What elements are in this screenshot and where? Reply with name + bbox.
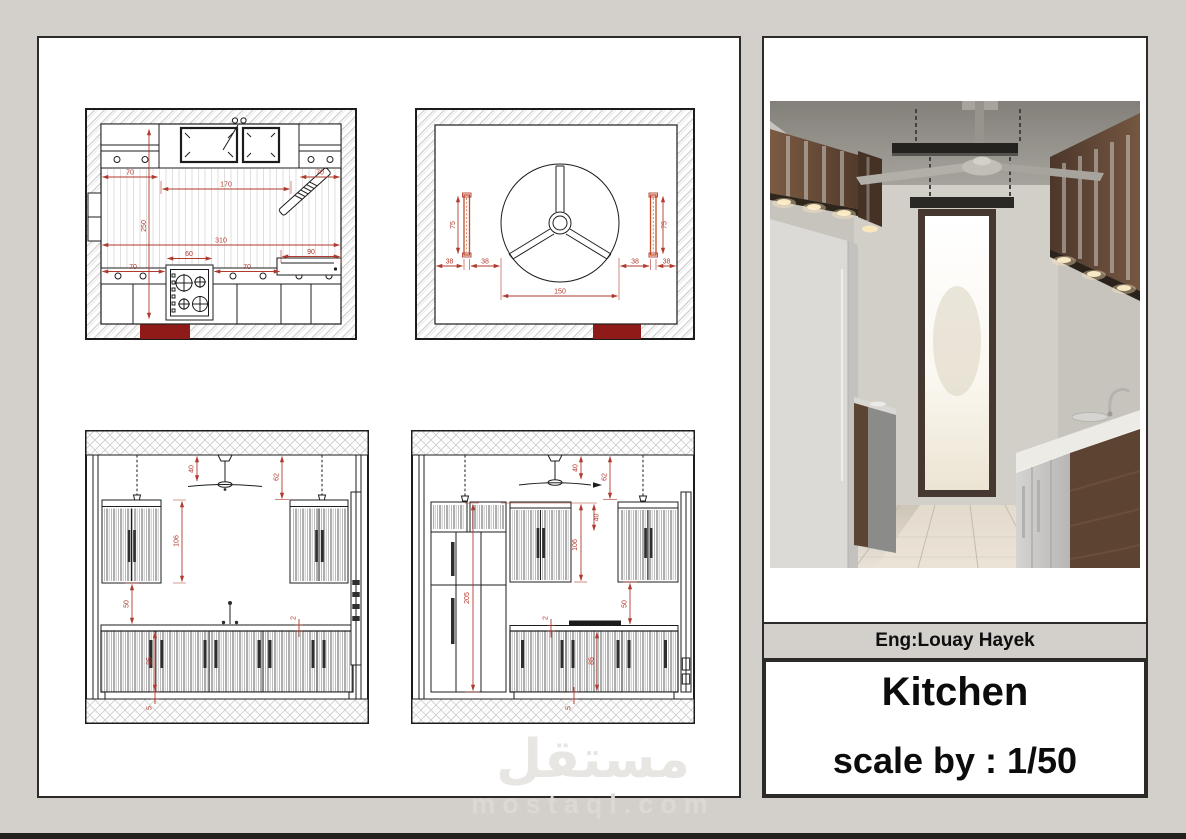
dim-label: 70 xyxy=(126,170,134,177)
wall-cabinet-left xyxy=(102,500,161,583)
dim-label: 38 xyxy=(446,259,454,266)
elevation-sink-wall-drawing: 40 62 106 50 85 2 5 xyxy=(85,430,369,724)
dim-label: 205 xyxy=(464,592,471,604)
sink-basin xyxy=(1072,413,1108,422)
dim-label: 170 xyxy=(220,182,232,189)
side-unit-right xyxy=(351,492,361,665)
dim-label: 60 xyxy=(185,251,193,258)
upper-cabinet-right xyxy=(299,124,341,168)
dim-label: 106 xyxy=(572,539,579,551)
dim-label: 5 xyxy=(147,706,154,710)
dim-label: 75 xyxy=(450,221,457,229)
scale-text: scale by : 1/50 xyxy=(833,740,1077,782)
dim-label: 70 xyxy=(316,170,324,177)
wall-cabinet-right xyxy=(290,500,348,583)
dim-label: 150 xyxy=(554,289,566,296)
floor-mat xyxy=(593,325,641,340)
dim-label: 40 xyxy=(189,465,196,473)
cooktop xyxy=(569,621,621,626)
kitchen-3d-render xyxy=(770,101,1140,568)
floor-plan-drawing: 70 70 170 250 310 70 60 70 90 xyxy=(85,108,357,340)
dim-label: 38 xyxy=(663,259,671,266)
upper-cabinet-left xyxy=(101,124,159,168)
light-fixture-right xyxy=(649,193,658,257)
fridge xyxy=(431,532,506,692)
dim-label: 38 xyxy=(481,259,489,266)
dim-label: 62 xyxy=(274,473,281,481)
engineer-band: Eng:Louay Hayek xyxy=(764,622,1146,660)
stove xyxy=(166,265,213,320)
dim-label: 50 xyxy=(124,600,131,608)
title-block: Kitchen scale by : 1/50 xyxy=(764,660,1146,796)
dim-label: 40 xyxy=(573,464,580,472)
dim-label: 2 xyxy=(543,616,550,620)
elevation-fridge-wall-drawing: 40 62 40 106 205 50 2 85 5 xyxy=(411,430,695,724)
dim-label: 85 xyxy=(147,657,154,665)
dim-label: 38 xyxy=(631,259,639,266)
project-title: Kitchen xyxy=(882,670,1029,715)
dim-label: 90 xyxy=(307,249,315,256)
window xyxy=(918,209,996,497)
light-bar-lower xyxy=(910,197,1014,208)
dim-label: 310 xyxy=(215,238,227,245)
dim-label: 40 xyxy=(594,514,601,522)
oven-unit xyxy=(277,258,341,275)
dim-label: 50 xyxy=(622,600,629,608)
dim-label: 2 xyxy=(291,616,298,620)
dim-label: 70 xyxy=(129,264,137,271)
dim-label: 85 xyxy=(589,657,596,665)
drawing-sheet-left: 70 70 170 250 310 70 60 70 90 xyxy=(37,36,741,798)
floor-mat xyxy=(140,325,190,340)
dim-label: 250 xyxy=(141,220,148,232)
ceiling-plan-drawing: 75 75 38 38 38 38 150 xyxy=(415,108,695,340)
dim-label: 62 xyxy=(602,473,609,481)
base-cabinets xyxy=(101,625,353,699)
dim-label: 5 xyxy=(566,706,573,710)
dim-label: 70 xyxy=(243,264,251,271)
title-sheet-right: Eng:Louay Hayek Kitchen scale by : 1/50 xyxy=(762,36,1148,798)
dim-label: 75 xyxy=(662,221,669,229)
bottom-edge-strip xyxy=(0,833,1186,839)
wall-cabinet-right xyxy=(618,502,678,582)
fridge xyxy=(770,219,858,568)
mid-base-cabinet xyxy=(854,397,896,553)
engineer-name: Eng:Louay Hayek xyxy=(875,630,1034,652)
light-fixture-left xyxy=(463,193,472,257)
dim-label: 106 xyxy=(174,535,181,547)
side-unit-right xyxy=(681,492,691,692)
wall-cabinet-mid xyxy=(510,502,571,582)
wall-window-left xyxy=(88,193,101,241)
